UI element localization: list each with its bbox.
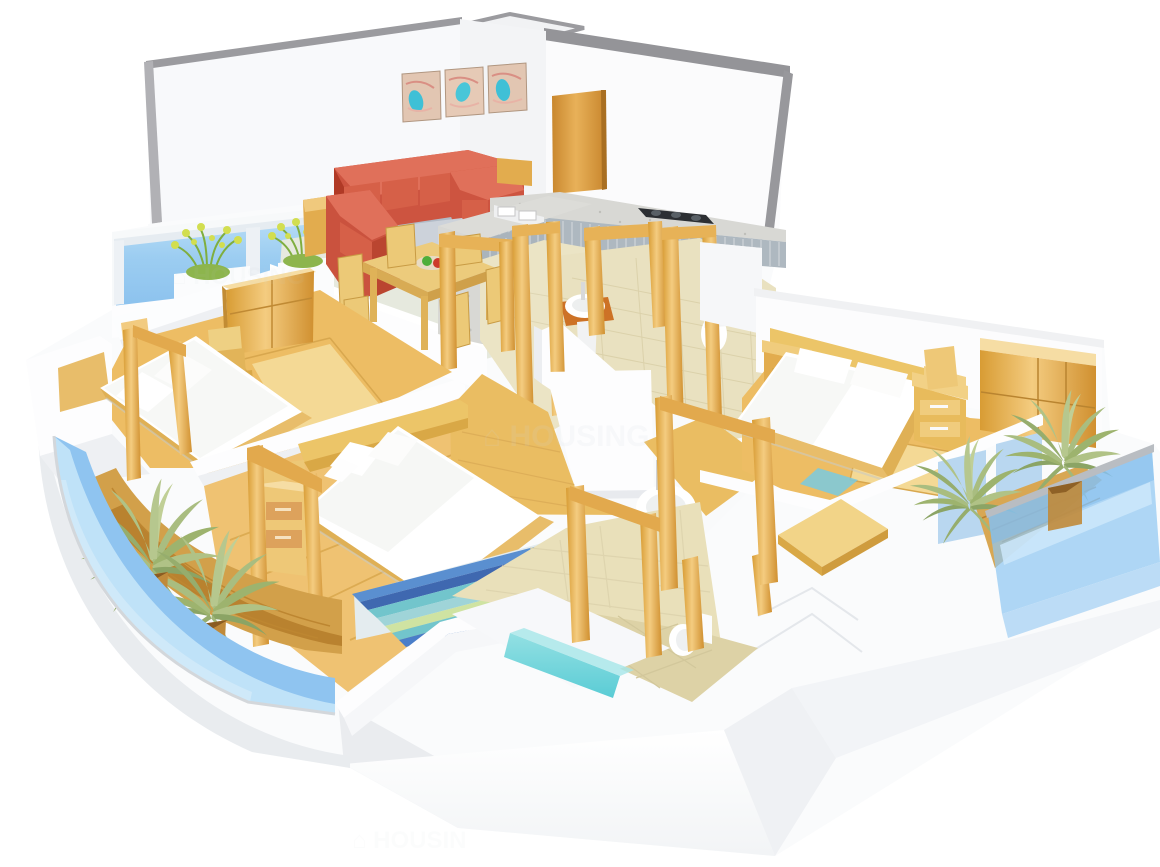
- svg-text:⌂ HOUSING: ⌂ HOUSING: [172, 263, 305, 290]
- svg-text:⌂ HOUSING: ⌂ HOUSING: [483, 420, 649, 453]
- svg-text:⌂ HOUSIN: ⌂ HOUSIN: [352, 827, 467, 854]
